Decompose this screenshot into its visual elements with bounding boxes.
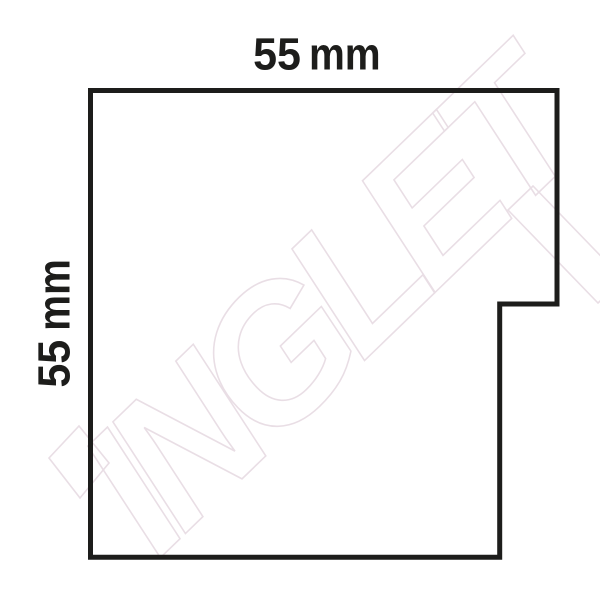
svg-text:55: 55 (253, 30, 301, 80)
svg-text:mm: mm (29, 259, 80, 331)
svg-text:55: 55 (30, 340, 80, 388)
svg-text:mm: mm (309, 29, 381, 80)
